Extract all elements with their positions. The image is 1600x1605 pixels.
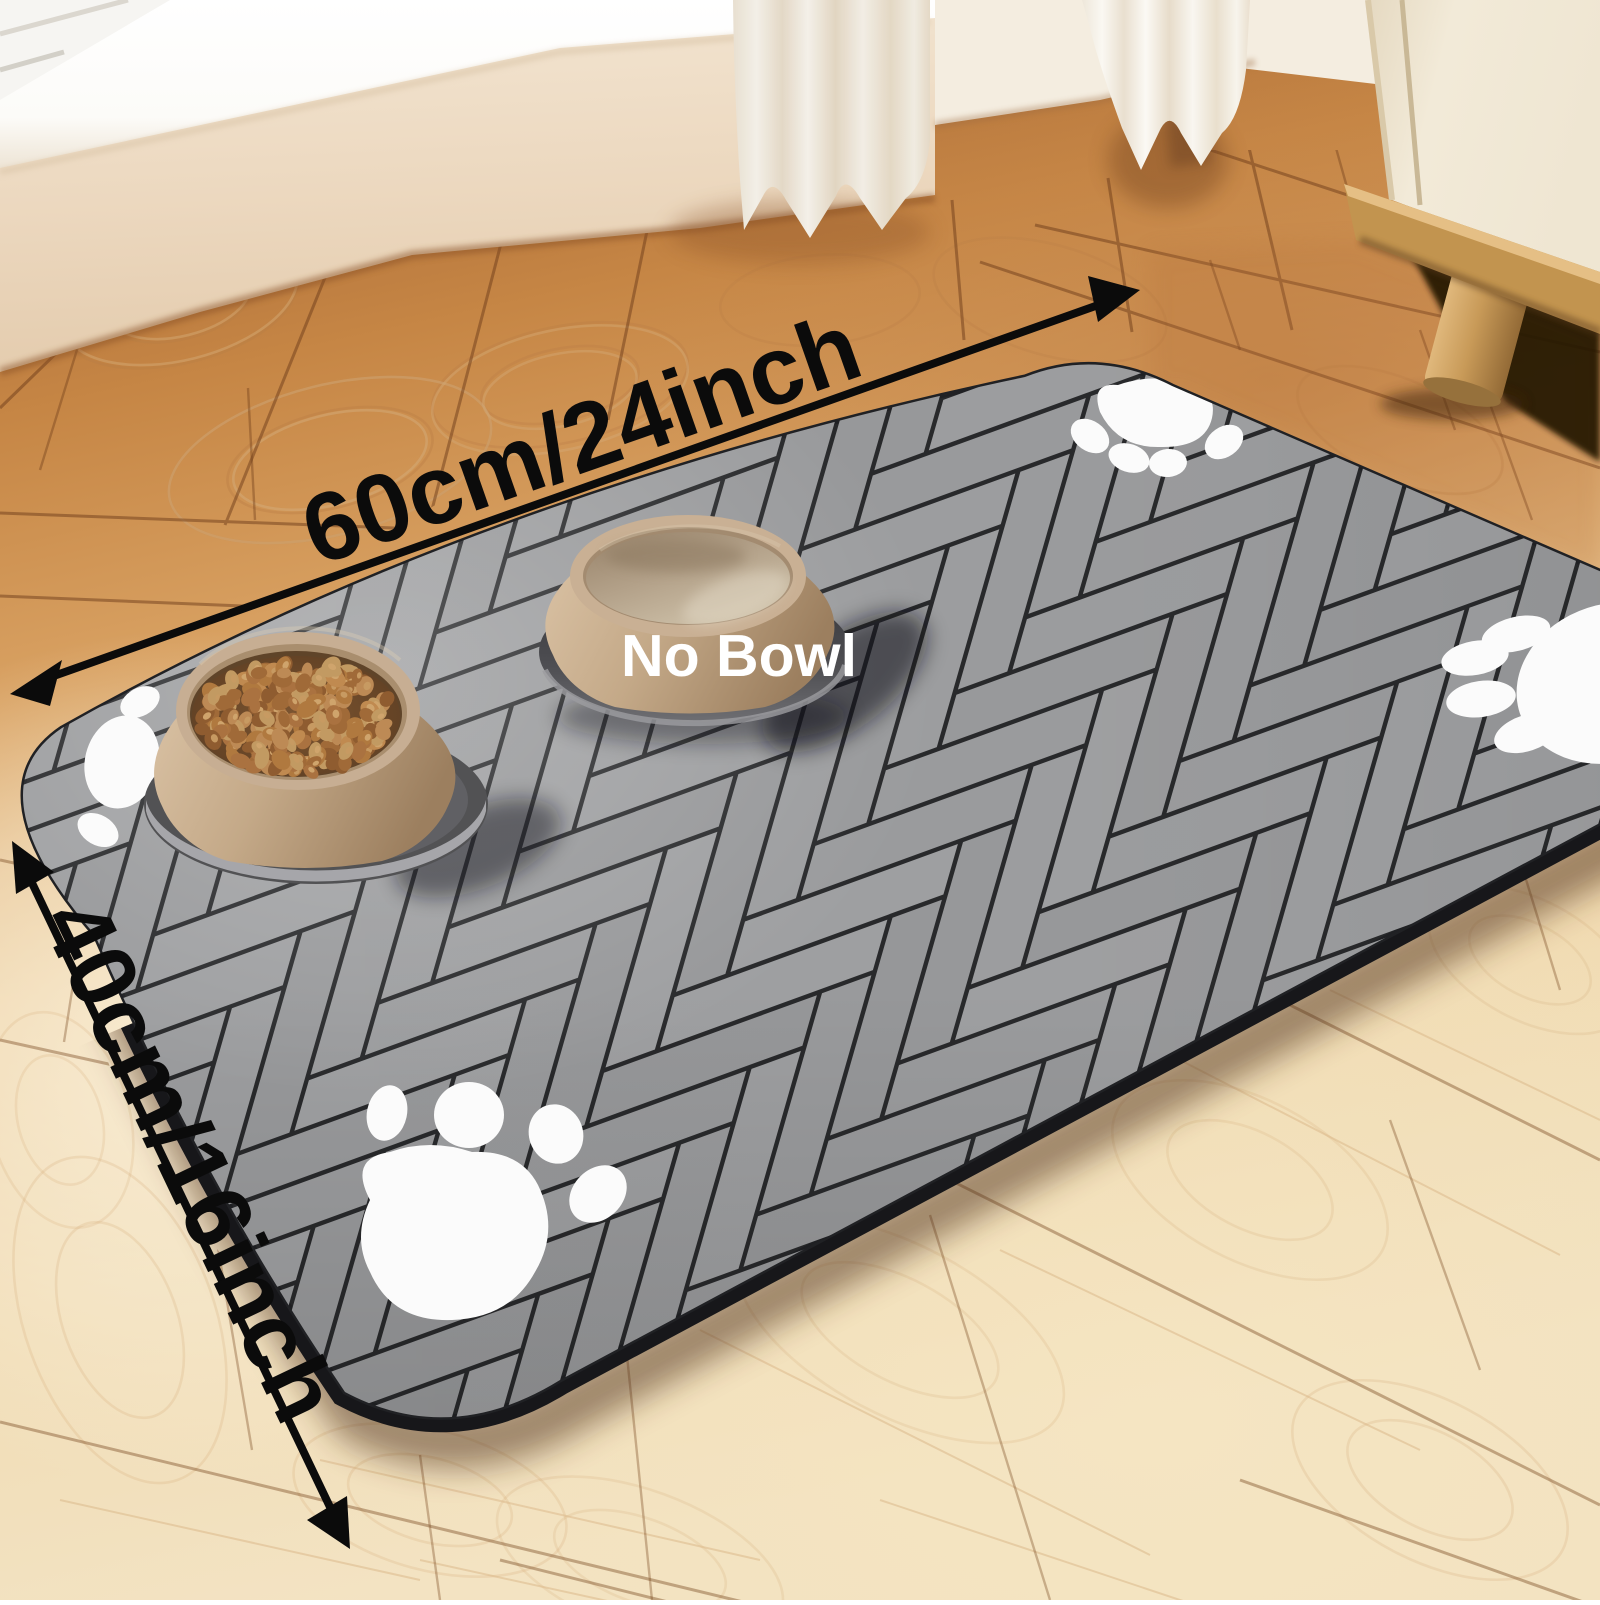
svg-text:No Bowl: No Bowl <box>621 623 857 689</box>
